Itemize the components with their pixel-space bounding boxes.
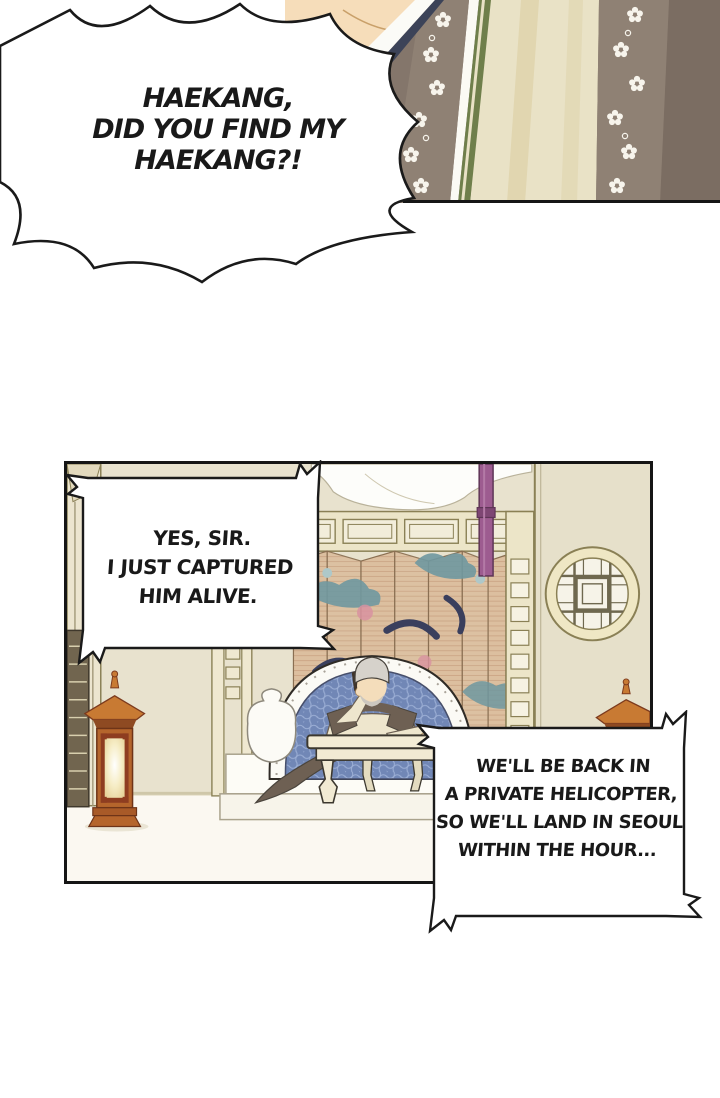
- webtoon-page: { "page": { "type": "webtoon-comic-page"…: [0, 0, 720, 1098]
- reply-line: YES, SIR.: [86, 524, 318, 553]
- shout-line: HAEKANG?!: [38, 145, 398, 176]
- round-lattice-window: [546, 547, 639, 640]
- shout-line: HAEKANG,: [38, 83, 398, 114]
- top-panel-bottom-border: [403, 200, 720, 203]
- floral-lapel-right: [596, 0, 669, 203]
- reply-bubble-text: YES, SIR. I JUST CAPTURED HIM ALIVE.: [82, 524, 318, 611]
- report-line: WITHIN THE HOUR...: [433, 837, 681, 865]
- shout-line: DID YOU FIND MY: [38, 114, 398, 145]
- report-line: WE'LL BE BACK IN: [439, 753, 687, 781]
- report-bubble-text: WE'LL BE BACK IN A PRIVATE HELICOPTER, S…: [433, 753, 687, 865]
- magenta-pillar: [477, 464, 495, 576]
- report-line: SO WE'LL LAND IN SEOUL: [435, 809, 683, 837]
- shout-bubble-text: HAEKANG, DID YOU FIND MY HAEKANG?!: [38, 83, 398, 176]
- report-line: A PRIVATE HELICOPTER,: [437, 781, 685, 809]
- reply-line: I JUST CAPTURED: [84, 553, 316, 582]
- reply-line: HIM ALIVE.: [82, 582, 314, 611]
